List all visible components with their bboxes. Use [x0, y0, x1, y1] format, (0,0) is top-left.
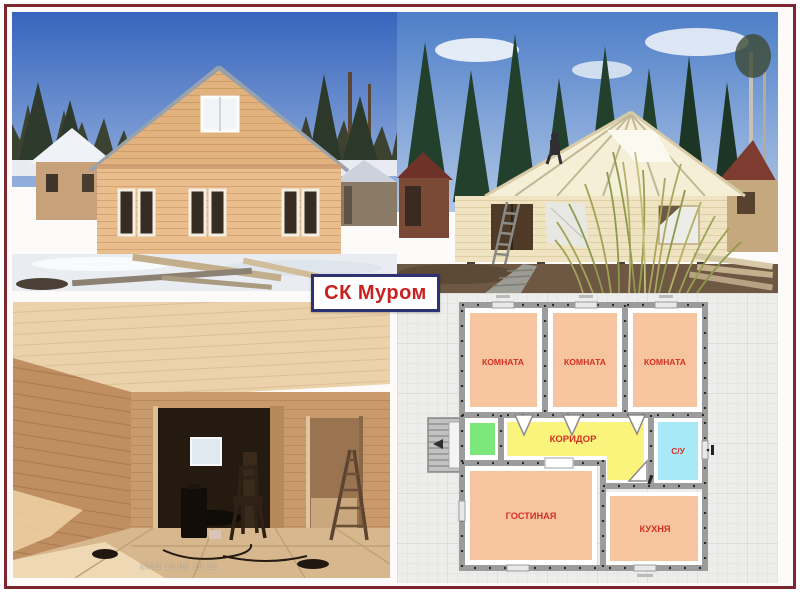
- floor-plan-drawing: КОМНАТА КОМНАТА КОМНАТА КОРИДОР С/У ГОСТ…: [397, 293, 778, 583]
- covered-window-center: [545, 202, 589, 248]
- label-komnata-3: КОМНАТА: [644, 357, 686, 367]
- exterior-winter-scene: [12, 12, 397, 291]
- partition-board: [270, 406, 284, 528]
- collage: 2023.12.02 15:21: [0, 0, 800, 593]
- attic-window: [202, 97, 238, 131]
- label-kitchen: КУХНЯ: [640, 524, 671, 534]
- construction-scene: [397, 12, 778, 293]
- porch: [428, 418, 462, 472]
- photo-interior: 2023.12.02 15:21: [13, 302, 390, 578]
- small-bag: [209, 530, 221, 539]
- brand-badge: СК Муром: [311, 274, 440, 312]
- label-komnata-1: КОМНАТА: [482, 357, 524, 367]
- photo-timestamp: 2023.12.02 15:21: [140, 562, 218, 571]
- interior-scene: [13, 302, 390, 578]
- photo-construction: [397, 12, 778, 293]
- right-doorway: [306, 416, 363, 528]
- facade-windows: [119, 190, 318, 235]
- speaker-box: [181, 484, 207, 538]
- label-living: ГОСТИНАЯ: [506, 511, 557, 521]
- photo-exterior-winter: [12, 12, 397, 291]
- inner-window: [191, 438, 221, 465]
- label-corridor: КОРИДОР: [550, 434, 598, 445]
- left-doorway: [153, 406, 284, 528]
- brand-label: СК Муром: [324, 282, 427, 305]
- label-komnata-2: КОМНАТА: [564, 357, 606, 367]
- label-bathroom: С/У: [671, 446, 685, 456]
- floor-plan: КОМНАТА КОМНАТА КОМНАТА КОРИДОР С/У ГОСТ…: [397, 293, 778, 583]
- room-entry: [470, 423, 495, 455]
